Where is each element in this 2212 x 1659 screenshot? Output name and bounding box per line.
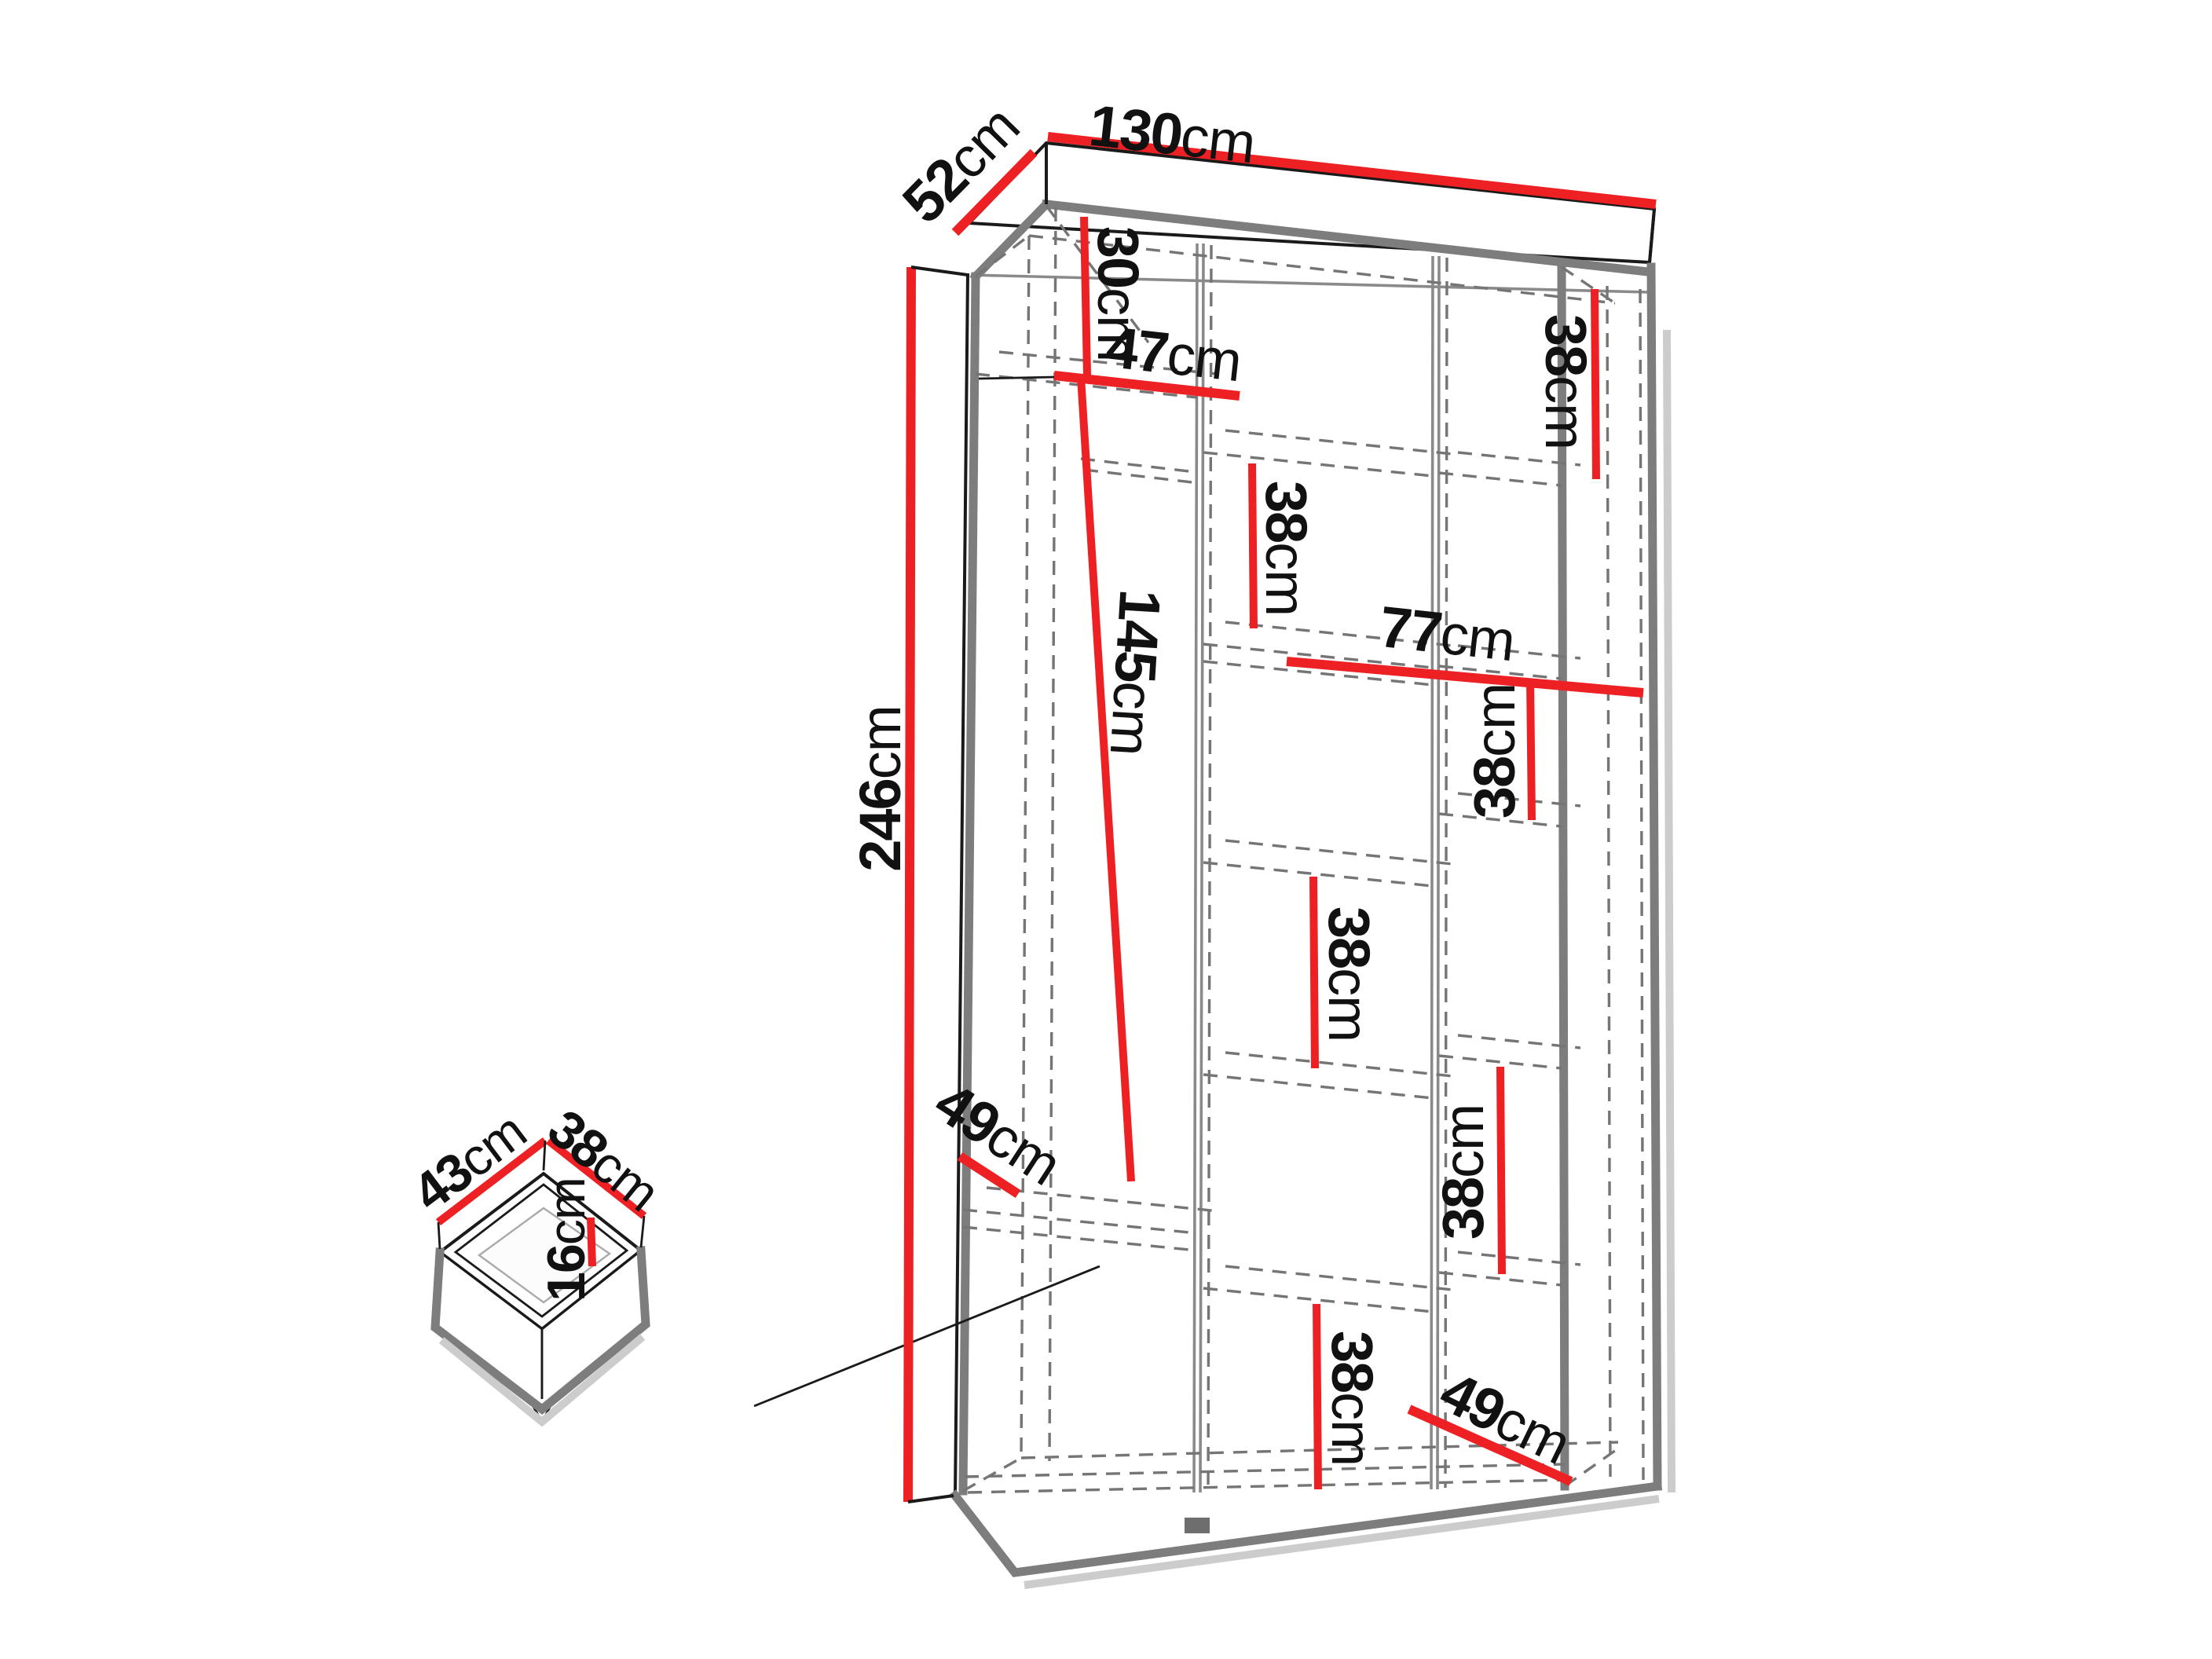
wardrobe-dimension-diagram: 130cm 52cm 246cm 30cm 47cm 145cm 49cm 77…: [0, 0, 2212, 1659]
wardrobe-right-edge: [1651, 267, 1657, 1486]
dim-line-compartment-3: [1530, 679, 1532, 820]
dim-line-compartment-6: [1317, 1304, 1318, 1489]
drawer-leader-line: [754, 1266, 1100, 1406]
label-compartment-6: 38cm: [1320, 1331, 1385, 1466]
label-compartment-4: 38cm: [1317, 906, 1382, 1042]
label-drawer-height: 16cm: [537, 1177, 596, 1302]
dim-line-height: [908, 267, 911, 1502]
dimension-labels: 130cm 52cm 246cm 30cm 47cm 145cm 49cm 77…: [402, 93, 1599, 1477]
label-compartment-5: 38cm: [1430, 1104, 1496, 1240]
label-right-width: 77cm: [1376, 594, 1518, 673]
diagram-stage: 130cm 52cm 246cm 30cm 47cm 145cm 49cm 77…: [0, 0, 2212, 1659]
door-split-foot: [1185, 1518, 1210, 1533]
dim-line-compartment-5: [1500, 1067, 1502, 1274]
label-compartment-2: 38cm: [1254, 481, 1319, 616]
wardrobe-bottom-edge: [955, 1486, 1657, 1573]
wardrobe-top-face: [969, 143, 1654, 262]
dim-line-hanging-height: [1081, 377, 1131, 1181]
label-hanging-height: 145cm: [1098, 588, 1174, 757]
label-height: 246cm: [848, 705, 913, 871]
label-bottom-right-depth: 49cm: [1430, 1359, 1580, 1477]
label-compartment-1: 38cm: [1533, 314, 1599, 449]
label-compartment-3: 38cm: [1462, 683, 1527, 819]
dim-line-compartment-4: [1313, 877, 1315, 1068]
